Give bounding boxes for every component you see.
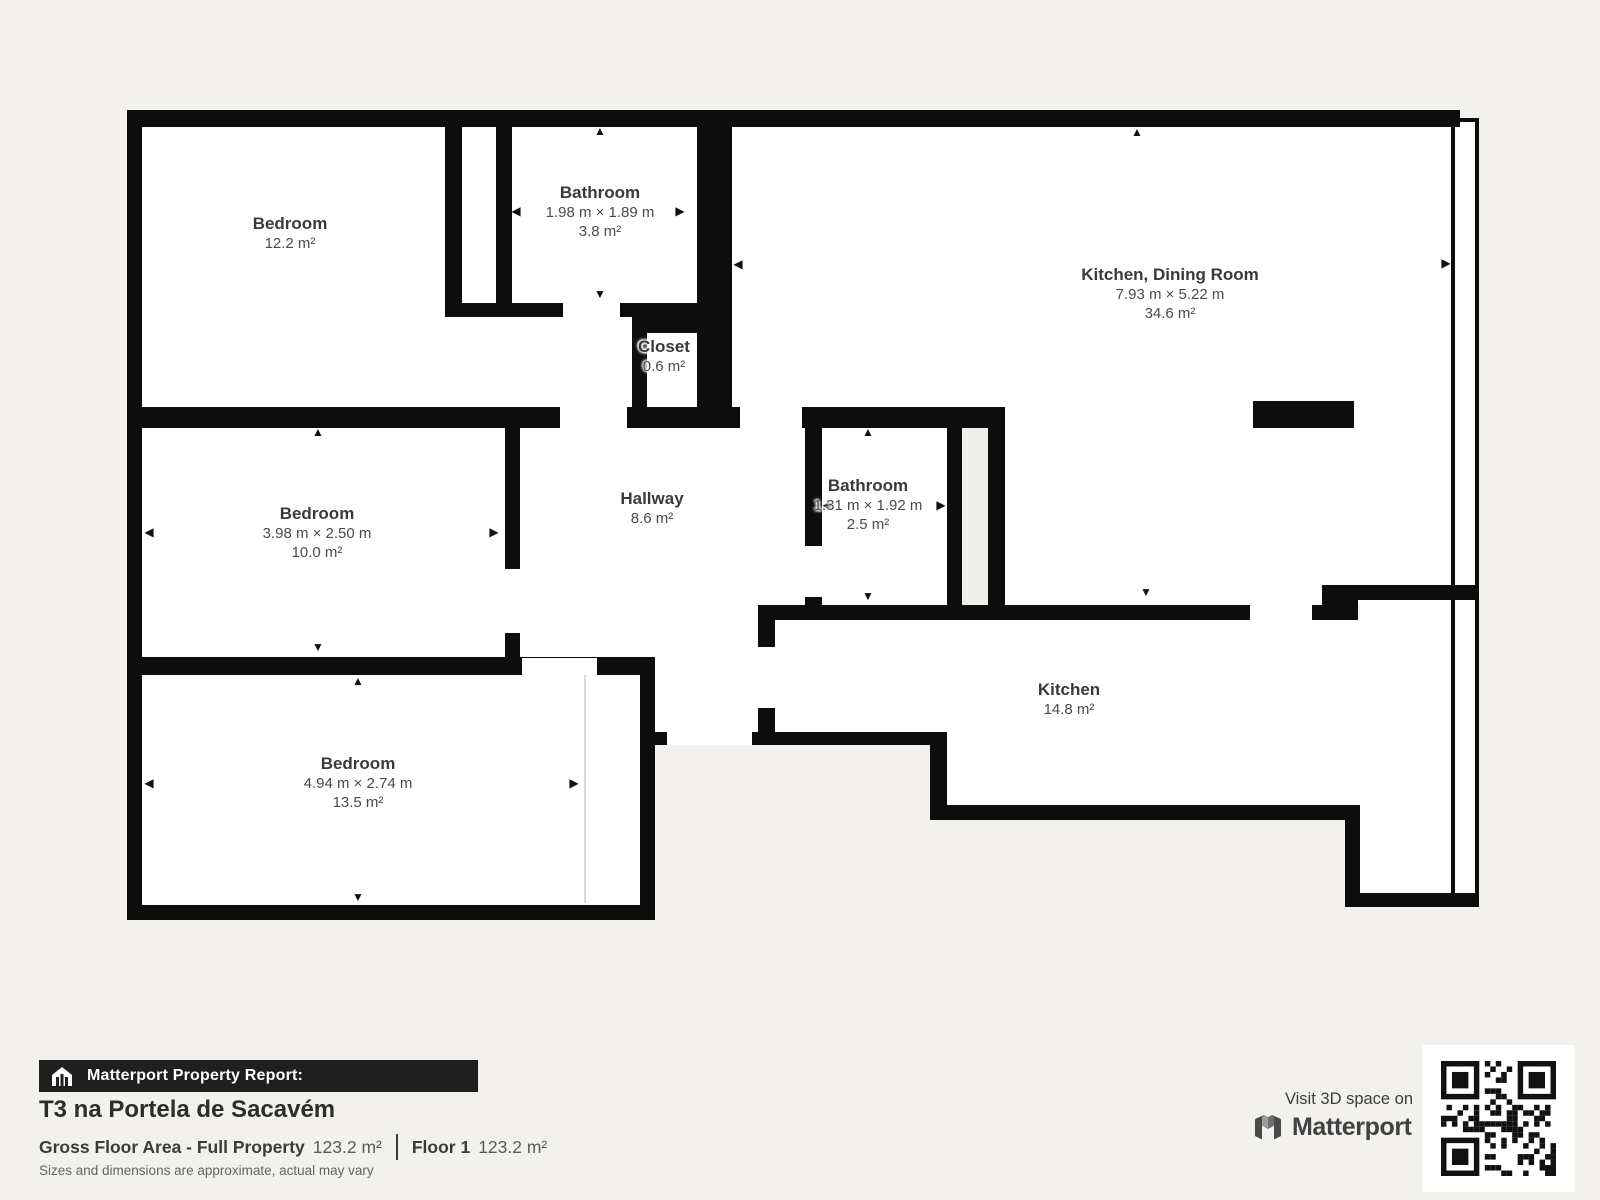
room-dimensions: 4.94 m × 2.74 m bbox=[198, 774, 518, 793]
room-label-bedroom-2: Bedroom 3.98 m × 2.50 m 10.0 m² bbox=[157, 503, 477, 562]
wall-segment bbox=[697, 110, 732, 428]
door-opening bbox=[522, 658, 597, 675]
report-header-bar: Matterport Property Report: bbox=[39, 1060, 478, 1092]
room-label-bathroom-1: Bathroom 1.98 m × 1.89 m 3.8 m² bbox=[440, 182, 760, 241]
arrow-down-icon: ▼ bbox=[1140, 586, 1152, 598]
room-name: Bathroom bbox=[708, 475, 1028, 496]
visit-3d-text: Visit 3D space on bbox=[1253, 1090, 1445, 1109]
door-opening bbox=[758, 647, 775, 708]
arrow-left-icon: ◀ bbox=[144, 777, 153, 789]
arrow-down-icon: ▼ bbox=[312, 641, 324, 653]
door-swing-line bbox=[584, 675, 586, 903]
arrow-down-icon: ▼ bbox=[862, 590, 874, 602]
door-opening bbox=[1250, 605, 1312, 620]
arrow-left-icon: ◀ bbox=[733, 258, 742, 270]
arrow-up-icon: ▲ bbox=[312, 426, 324, 438]
room-floor bbox=[1360, 600, 1455, 893]
room-label-kitchen-dining: Kitchen, Dining Room 7.93 m × 5.22 m 34.… bbox=[1010, 264, 1330, 323]
room-name: Kitchen, Dining Room bbox=[1010, 264, 1330, 285]
room-area: 10.0 m² bbox=[157, 543, 477, 562]
room-dimensions: 3.98 m × 2.50 m bbox=[157, 524, 477, 543]
door-opening bbox=[805, 546, 822, 597]
room-label-bathroom-2: Bathroom 1.31 m × 1.92 m 2.5 m² bbox=[708, 475, 1028, 534]
room-dimensions: 1.31 m × 1.92 m bbox=[708, 496, 1028, 515]
room-name: Closet bbox=[504, 336, 824, 357]
room-area: 2.5 m² bbox=[708, 515, 1028, 534]
door-opening bbox=[667, 732, 752, 745]
room-label-bedroom-3: Bedroom 4.94 m × 2.74 m 13.5 m² bbox=[198, 753, 518, 812]
wall-segment bbox=[127, 110, 1460, 127]
wall-segment bbox=[640, 657, 655, 920]
arrow-up-icon: ▲ bbox=[594, 125, 606, 137]
arrow-right-icon: ▶ bbox=[1441, 257, 1450, 269]
room-dimensions: 1.98 m × 1.89 m bbox=[440, 203, 760, 222]
room-floor bbox=[947, 732, 1360, 805]
room-name: Kitchen bbox=[909, 679, 1229, 700]
wall-segment bbox=[758, 605, 1323, 620]
report-bar-label: Matterport Property Report: bbox=[87, 1067, 303, 1085]
room-area: 12.2 m² bbox=[130, 234, 450, 253]
floor-label: Floor 1 bbox=[412, 1137, 470, 1158]
door-opening bbox=[563, 303, 620, 317]
room-name: Bedroom bbox=[130, 213, 450, 234]
wall-segment bbox=[1253, 401, 1354, 428]
arrow-up-icon: ▲ bbox=[862, 426, 874, 438]
room-area: 13.5 m² bbox=[198, 793, 518, 812]
wall-segment bbox=[1322, 585, 1358, 620]
arrow-left-icon: ◀ bbox=[144, 526, 153, 538]
room-floor bbox=[142, 127, 445, 407]
wall-segment bbox=[632, 317, 700, 333]
wall-segment bbox=[1345, 805, 1360, 907]
wall-segment bbox=[127, 905, 655, 920]
room-dimensions: 7.93 m × 5.22 m bbox=[1010, 285, 1330, 304]
room-name: Bathroom bbox=[440, 182, 760, 203]
property-title: T3 na Portela de Sacavém bbox=[39, 1096, 335, 1124]
arrow-up-icon: ▲ bbox=[1131, 126, 1143, 138]
room-name: Bedroom bbox=[157, 503, 477, 524]
matterport-logo-icon bbox=[1253, 1114, 1283, 1142]
room-label-closet: Closet 0.6 m² bbox=[504, 336, 824, 376]
room-name: Bedroom bbox=[198, 753, 518, 774]
arrow-down-icon: ▼ bbox=[352, 891, 364, 903]
room-label-bedroom-1: Bedroom 12.2 m² bbox=[130, 213, 450, 253]
house-report-icon bbox=[51, 1067, 73, 1086]
window-glass bbox=[1455, 122, 1475, 903]
matterport-brand: Matterport bbox=[1253, 1113, 1412, 1142]
gross-floor-area-label: Gross Floor Area - Full Property bbox=[39, 1137, 305, 1158]
room-area: 0.6 m² bbox=[504, 357, 824, 376]
floor-plan-report: ▲◀▶▼▲◀▶▼▲◀▶▼▲◀▶▼▲◀▶▼ Bedroom 12.2 m² Bat… bbox=[0, 0, 1600, 1200]
qr-panel bbox=[1422, 1045, 1575, 1192]
arrow-right-icon: ▶ bbox=[569, 777, 578, 789]
room-area: 3.8 m² bbox=[440, 222, 760, 241]
wall-segment bbox=[930, 805, 1360, 820]
divider bbox=[396, 1134, 398, 1160]
room-area: 14.8 m² bbox=[909, 700, 1229, 719]
door-opening bbox=[560, 407, 627, 428]
qr-code bbox=[1440, 1061, 1557, 1176]
door-opening bbox=[505, 569, 520, 633]
gross-floor-area-value: 123.2 m² bbox=[313, 1137, 382, 1158]
room-label-kitchen: Kitchen 14.8 m² bbox=[909, 679, 1229, 719]
room-area: 34.6 m² bbox=[1010, 304, 1330, 323]
floor-value: 123.2 m² bbox=[478, 1137, 547, 1158]
arrow-up-icon: ▲ bbox=[352, 675, 364, 687]
wall-segment bbox=[1345, 893, 1478, 907]
disclaimer-text: Sizes and dimensions are approximate, ac… bbox=[39, 1163, 374, 1178]
matterport-wordmark: Matterport bbox=[1292, 1113, 1412, 1142]
door-opening bbox=[740, 407, 802, 428]
floor-area-line: Gross Floor Area - Full Property 123.2 m… bbox=[39, 1134, 547, 1160]
arrow-down-icon: ▼ bbox=[594, 288, 606, 300]
